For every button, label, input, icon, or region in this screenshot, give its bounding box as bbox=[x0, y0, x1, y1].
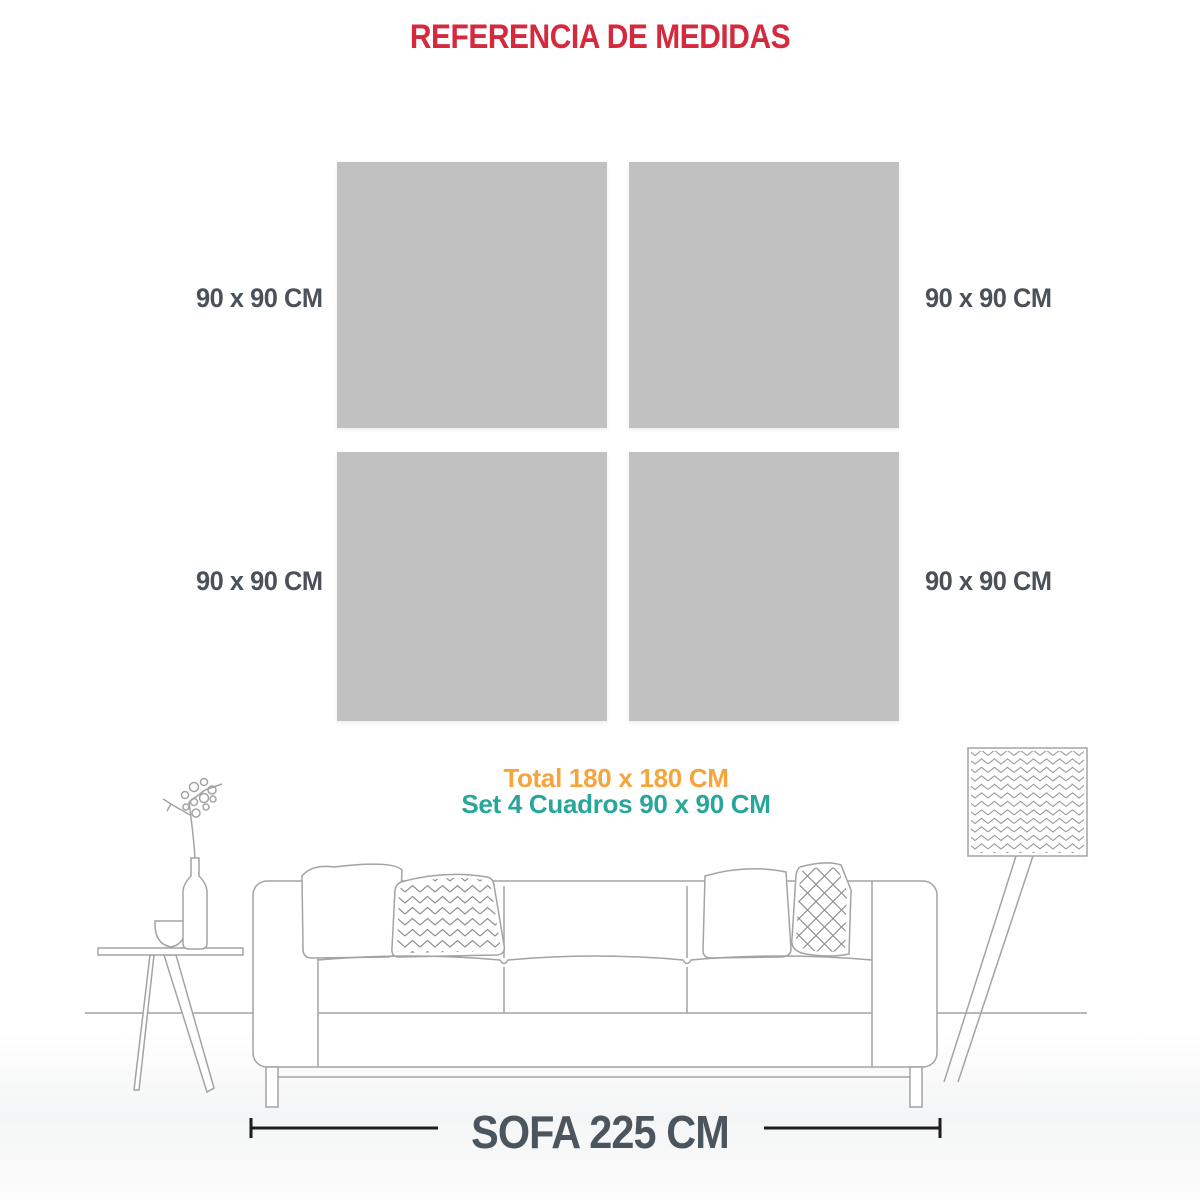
frame-size-label: 90 x 90 CM bbox=[925, 283, 1052, 314]
frame-square-top-right bbox=[629, 162, 899, 428]
vase bbox=[183, 858, 207, 949]
frame-square-top-left bbox=[337, 162, 607, 428]
frame-size-label: 90 x 90 CM bbox=[196, 566, 323, 597]
side-table bbox=[98, 948, 243, 1092]
chevron-pillow-pattern bbox=[397, 878, 501, 953]
diamond-pillow-pattern bbox=[796, 867, 847, 952]
floor-lamp bbox=[944, 748, 1087, 1082]
plain-pillow-right bbox=[703, 869, 791, 958]
frame-square-bottom-left bbox=[337, 452, 607, 721]
frame-size-label: 90 x 90 CM bbox=[925, 566, 1052, 597]
bowl bbox=[155, 921, 186, 947]
frame-size-label: 90 x 90 CM bbox=[196, 283, 323, 314]
branch bbox=[163, 779, 222, 859]
plain-pillow-left bbox=[302, 864, 402, 958]
frame-square-bottom-right bbox=[629, 452, 899, 721]
measurement-reference-graphic: REFERENCIA DE MEDIDAS 90 x 90 CM 90 x 90… bbox=[0, 0, 1200, 1200]
page-title: REFERENCIA DE MEDIDAS bbox=[72, 18, 1128, 57]
sofa-width-text: SOFA 225 CM bbox=[60, 1105, 1140, 1159]
